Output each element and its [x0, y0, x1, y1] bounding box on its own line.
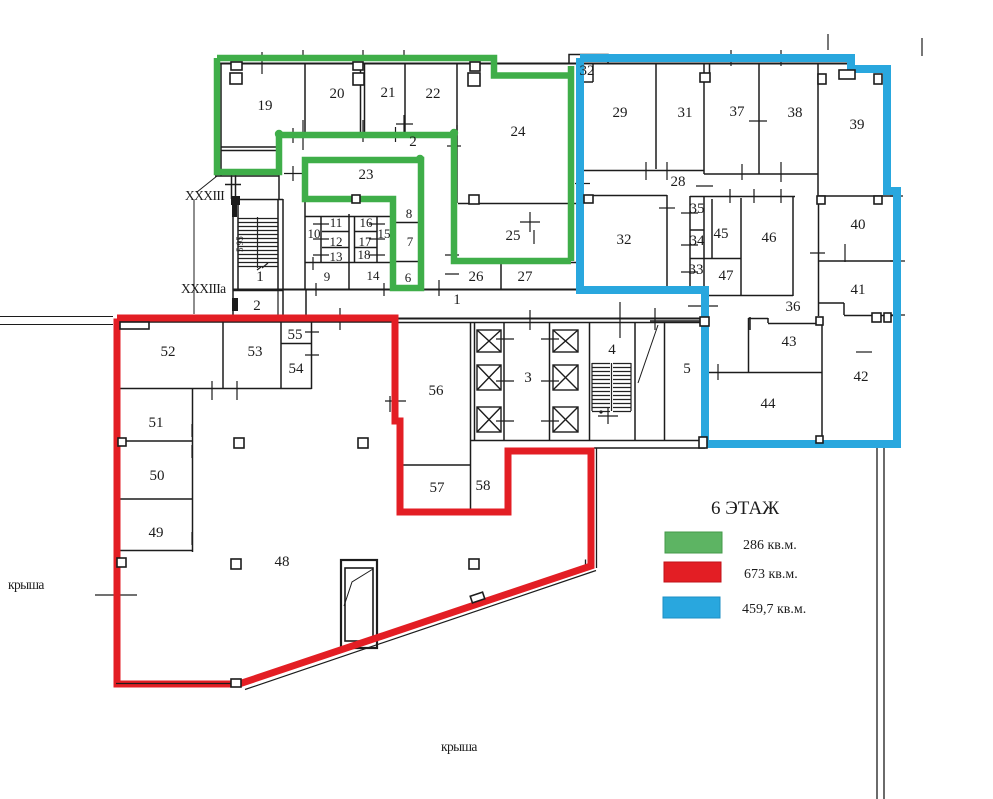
svg-text:33: 33: [689, 262, 704, 278]
svg-text:49: 49: [149, 525, 164, 541]
svg-text:56: 56: [429, 383, 445, 399]
svg-text:8: 8: [406, 206, 413, 221]
svg-text:29: 29: [613, 105, 628, 121]
svg-text:22: 22: [426, 86, 441, 102]
svg-text:58: 58: [476, 478, 491, 494]
svg-text:52: 52: [161, 344, 176, 360]
svg-text:34: 34: [690, 233, 706, 249]
svg-text:крыша: крыша: [441, 739, 477, 754]
svg-text:53: 53: [248, 344, 263, 360]
svg-text:1: 1: [256, 269, 264, 285]
svg-text:2: 2: [253, 298, 261, 314]
svg-text:10: 10: [308, 226, 321, 241]
svg-text:50: 50: [150, 468, 165, 484]
svg-text:9: 9: [324, 269, 331, 284]
svg-text:45: 45: [714, 226, 729, 242]
svg-text:18: 18: [358, 247, 371, 262]
svg-text:6 ЭТАЖ: 6 ЭТАЖ: [711, 498, 780, 519]
svg-text:23: 23: [359, 167, 374, 183]
svg-text:36: 36: [786, 299, 802, 315]
svg-text:32: 32: [580, 63, 595, 79]
svg-text:27: 27: [518, 269, 534, 285]
svg-text:13: 13: [330, 249, 343, 264]
svg-text:286 кв.м.: 286 кв.м.: [743, 538, 797, 553]
svg-text:11: 11: [330, 215, 343, 230]
svg-text:20: 20: [330, 86, 345, 102]
svg-text:XXXIIIa: XXXIIIa: [181, 281, 226, 296]
svg-text:3: 3: [524, 370, 532, 386]
svg-text:4: 4: [608, 342, 616, 358]
svg-text:25: 25: [506, 228, 521, 244]
svg-text:31: 31: [678, 105, 693, 121]
svg-text:673 кв.м.: 673 кв.м.: [744, 567, 798, 582]
svg-text:37: 37: [730, 104, 746, 120]
svg-text:12: 12: [330, 234, 343, 249]
svg-text:39: 39: [850, 117, 865, 133]
svg-text:7: 7: [407, 234, 414, 249]
svg-text:55: 55: [288, 327, 303, 343]
svg-text:35: 35: [690, 201, 705, 217]
svg-text:46: 46: [762, 230, 778, 246]
svg-text:57: 57: [430, 480, 446, 496]
svg-text:16: 16: [360, 215, 374, 230]
svg-text:26: 26: [469, 269, 485, 285]
svg-text:2: 2: [409, 134, 417, 150]
svg-text:5.95: 5.95: [235, 236, 245, 252]
svg-text:крыша: крыша: [8, 577, 44, 592]
svg-text:21: 21: [381, 85, 396, 101]
svg-text:1: 1: [453, 292, 461, 308]
svg-text:44: 44: [761, 396, 777, 412]
svg-text:XXXIII: XXXIII: [185, 188, 225, 203]
svg-text:41: 41: [851, 282, 866, 298]
svg-text:5: 5: [683, 361, 691, 377]
svg-text:42: 42: [854, 369, 869, 385]
svg-text:32: 32: [617, 232, 632, 248]
svg-text:40: 40: [851, 217, 866, 233]
svg-text:15: 15: [378, 226, 391, 241]
svg-text:54: 54: [289, 361, 305, 377]
svg-text:28: 28: [671, 174, 686, 190]
svg-text:459,7 кв.м.: 459,7 кв.м.: [742, 602, 806, 617]
svg-text:24: 24: [511, 124, 527, 140]
svg-text:48: 48: [275, 554, 290, 570]
svg-text:51: 51: [149, 415, 164, 431]
svg-text:38: 38: [788, 105, 803, 121]
svg-text:6: 6: [405, 270, 412, 285]
svg-text:14: 14: [367, 268, 381, 283]
svg-text:47: 47: [719, 268, 735, 284]
svg-text:19: 19: [258, 98, 273, 114]
svg-text:43: 43: [782, 334, 797, 350]
